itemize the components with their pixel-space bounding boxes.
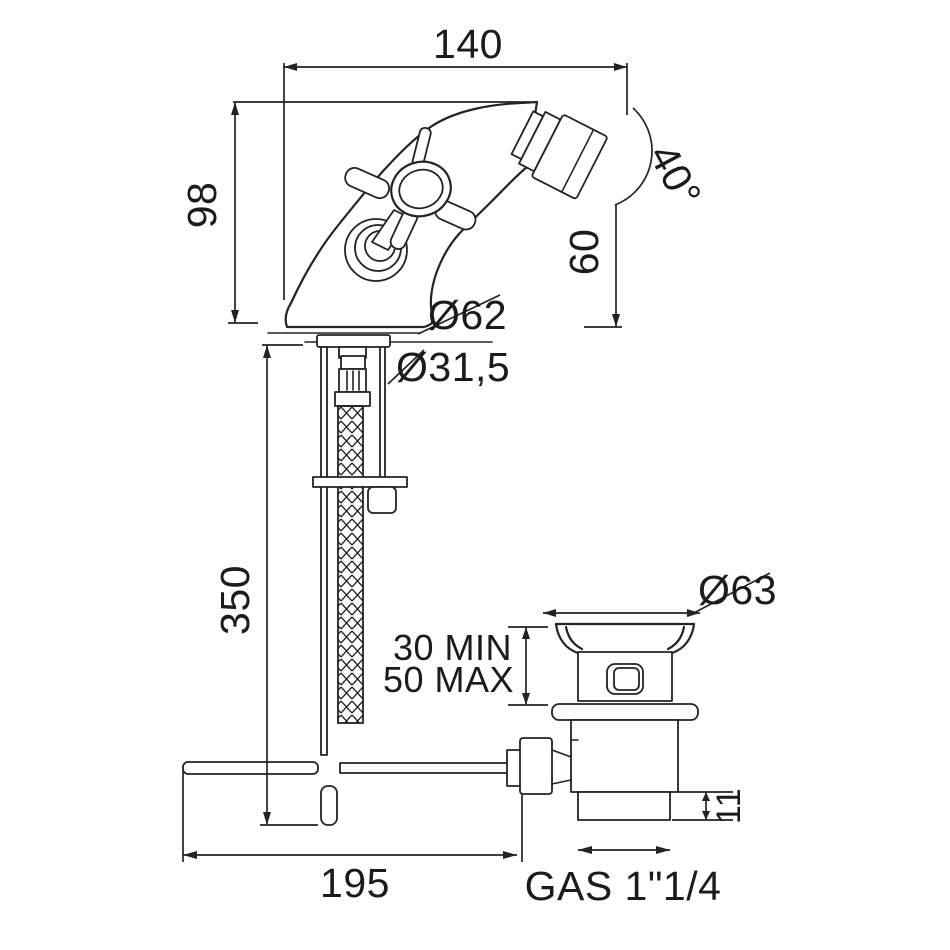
dim-dia315-label: Ø31,5	[396, 344, 510, 390]
dim-dia62-label: Ø62	[428, 292, 507, 338]
overflow-window-inner	[614, 668, 639, 690]
dim-gas-label: GAS 1"1/4	[525, 863, 722, 909]
dim-dia315: Ø31,5	[388, 344, 510, 390]
dim-deck-thickness: 30 MIN 50 MAX	[383, 627, 548, 705]
dim-deck-max-label: 50 MAX	[383, 659, 514, 700]
mounting-shank	[335, 347, 370, 406]
drain-lower-body	[571, 720, 678, 792]
rod-connector-band	[507, 750, 521, 786]
popup-rod-upper	[380, 347, 385, 489]
horizontal-rod-right	[340, 763, 509, 773]
dim-gas-thread: GAS 1"1/4	[525, 846, 722, 909]
popup-rod-lower	[321, 347, 327, 755]
dim-11: 11	[672, 788, 748, 824]
dim-11-label: 11	[710, 788, 748, 824]
rod-lower-stub	[321, 786, 337, 825]
dim-195-label: 195	[320, 860, 390, 906]
horizontal-rod-left	[183, 762, 318, 774]
mounting-flange	[317, 335, 390, 347]
dim-dia63-label: Ø63	[698, 567, 777, 613]
dim-98-label: 98	[179, 182, 225, 229]
bracket-plate	[313, 477, 407, 487]
flex-hose	[338, 406, 363, 723]
dim-60-label: 60	[561, 229, 607, 276]
dim-40deg: 40°	[615, 108, 711, 214]
bidet-faucet-drawing: 140 98 40° 60 Ø62 Ø31,5 350	[0, 0, 950, 950]
dim-dia63: Ø63	[543, 567, 777, 617]
technical-drawing-page: 140 98 40° 60 Ø62 Ø31,5 350	[0, 0, 950, 950]
dim-350: 350	[212, 345, 318, 825]
drain-funnel	[556, 624, 694, 653]
drain-tailpiece	[578, 792, 670, 820]
dim-60: 60	[561, 205, 622, 327]
shank-nut	[335, 392, 370, 406]
drain-assembly	[507, 624, 698, 820]
dim-350-label: 350	[212, 565, 258, 635]
clamp-block	[368, 487, 396, 513]
dim-dia62: Ø62	[418, 292, 507, 338]
rod-connector-nut	[520, 738, 552, 794]
drain-mid-flange	[552, 704, 698, 720]
dim-140-label: 140	[433, 21, 503, 67]
dim-40deg-label: 40°	[640, 137, 710, 215]
dim-195: 195	[183, 770, 522, 906]
